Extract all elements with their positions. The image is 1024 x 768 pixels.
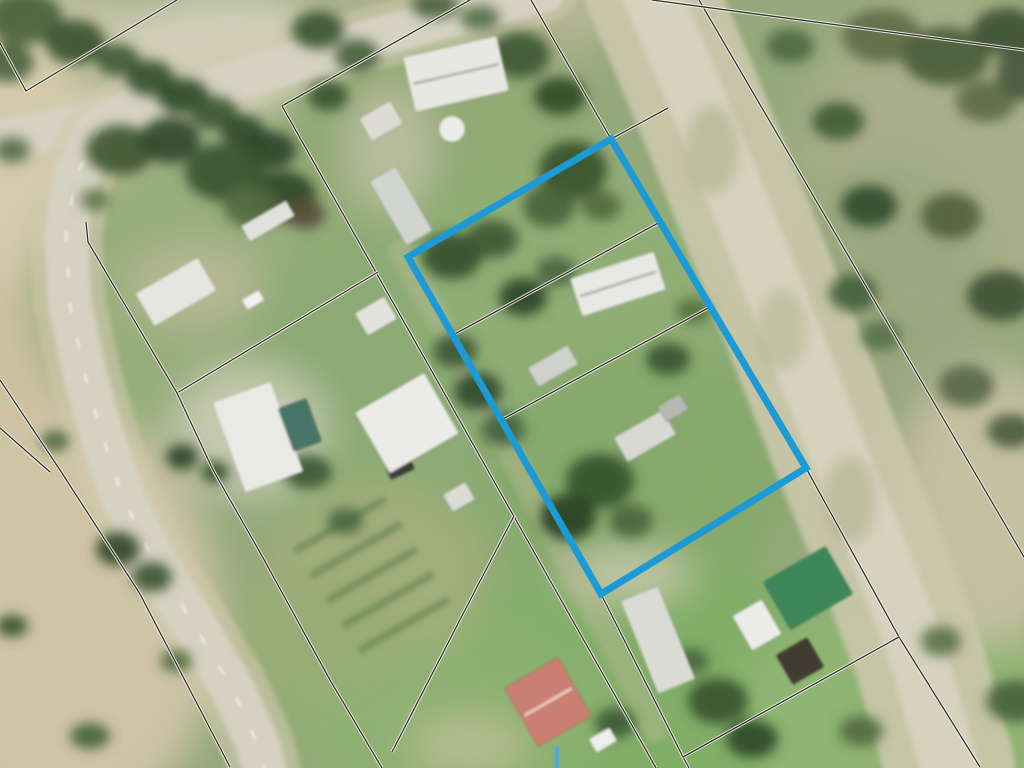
tree-canopy xyxy=(460,5,500,31)
road-grass-mottle xyxy=(686,106,738,194)
water-tank xyxy=(439,116,465,142)
tree-canopy xyxy=(812,102,864,140)
tree-canopy xyxy=(327,508,363,534)
tree-canopy xyxy=(938,365,994,407)
tree-canopy xyxy=(609,504,653,538)
tree-canopy xyxy=(726,720,778,758)
map-viewport[interactable] xyxy=(0,0,1024,768)
tree-canopy xyxy=(646,343,690,375)
tree-canopy xyxy=(839,716,883,746)
tree-canopy xyxy=(132,562,172,592)
tree-canopy xyxy=(841,185,897,227)
road-grass-mottle xyxy=(824,456,876,544)
tree-canopy xyxy=(466,220,518,258)
aerial-map-canvas xyxy=(0,0,1024,768)
tree-canopy xyxy=(581,191,621,221)
tree-canopy xyxy=(292,11,344,49)
tree-canopy xyxy=(921,626,961,656)
tree-canopy xyxy=(523,185,575,227)
tree-canopy xyxy=(921,193,981,239)
tree-canopy xyxy=(308,81,348,111)
tree-canopy xyxy=(140,117,200,163)
tree-canopy xyxy=(80,189,110,211)
tree-canopy xyxy=(70,723,110,749)
road-grass-mottle xyxy=(758,290,806,370)
tree-canopy xyxy=(166,444,198,470)
tree-canopy xyxy=(688,678,748,724)
tree-canopy xyxy=(45,20,105,64)
tree-canopy xyxy=(766,29,814,63)
